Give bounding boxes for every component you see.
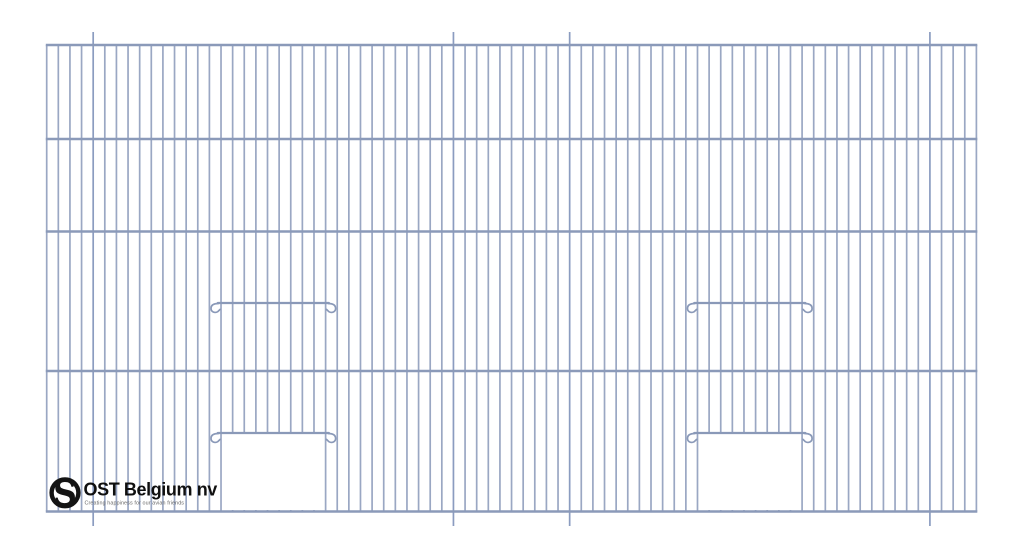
right-door-upper-slide-bar-left-hook (687, 304, 696, 313)
right-door-upper-slide-bar-right-hook (803, 304, 812, 313)
left-door-lower-slide-bar-left-hook (211, 434, 220, 443)
cage-front-panel: S OST Belgium nv Creating happiness for … (0, 0, 1024, 559)
logo-monogram: S (53, 474, 77, 513)
brand-name: OST Belgium nv (84, 480, 218, 500)
wire-grid (46, 32, 978, 526)
brand-logo: S OST Belgium nv Creating happiness for … (52, 474, 218, 513)
left-door-lower-slide-bar-right-hook (327, 434, 336, 443)
cage-front-drawing-page: S OST Belgium nv Creating happiness for … (0, 0, 1024, 559)
left-door-upper-slide-bar-right-hook (327, 304, 336, 313)
right-door-opening (699, 434, 801, 510)
brand-tagline: Creating happiness for our avian friends (85, 501, 185, 507)
left-door-upper-slide-bar-left-hook (211, 304, 220, 313)
left-door-opening (222, 434, 324, 510)
right-door-lower-slide-bar-right-hook (803, 434, 812, 443)
right-door-lower-slide-bar-left-hook (687, 434, 696, 443)
